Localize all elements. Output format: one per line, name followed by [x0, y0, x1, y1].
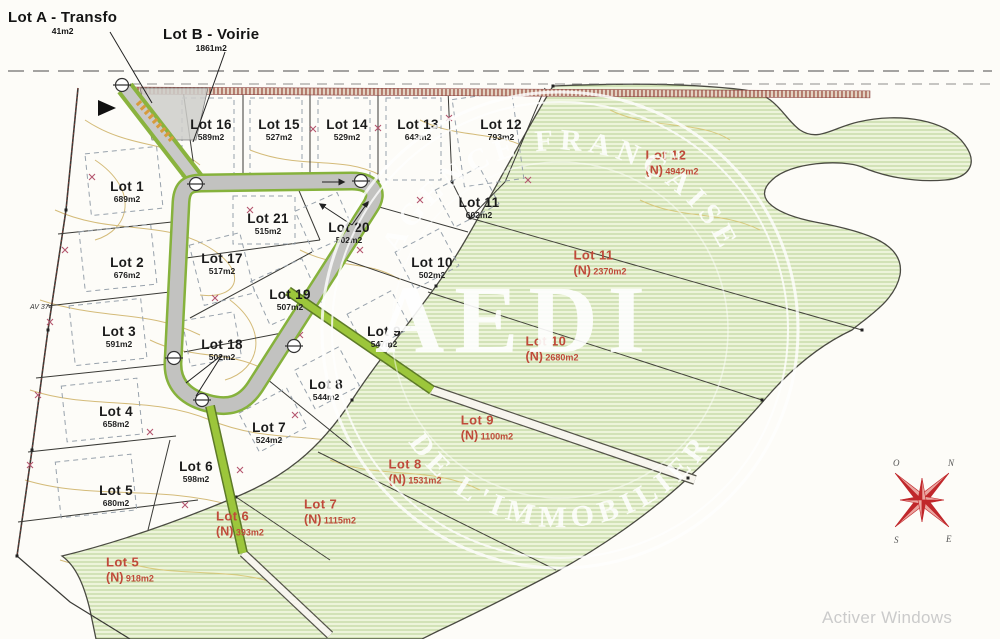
new-lot-area: 1115m2	[321, 515, 356, 525]
new-lot-detail: (N) 2680m2	[526, 349, 579, 364]
lot-name: Lot 16	[190, 118, 232, 133]
lot-area: 502m2	[411, 271, 453, 280]
new-lot-area: 4942m2	[663, 166, 699, 176]
lot-a-area: 41m2	[8, 27, 117, 36]
new-lot-area: 393m2	[233, 527, 264, 537]
new-lot-n: (N)	[461, 428, 478, 442]
lot-name: Lot 3	[102, 325, 136, 340]
lot-label-lot-9: Lot 9547m2	[367, 325, 401, 349]
new-lot-name: Lot 12	[646, 148, 699, 164]
new-lot-label-lot-11: Lot 11(N) 2370m2	[574, 248, 627, 279]
lot-name: Lot 6	[179, 460, 213, 475]
lot-label-lot-21: Lot 21515m2	[247, 212, 289, 236]
lot-labels-layer: Lot 16589m2Lot 15527m2Lot 14529m2Lot 136…	[0, 0, 1000, 639]
lot-label-lot-3: Lot 3591m2	[102, 325, 136, 349]
new-lot-detail: (N) 1531m2	[389, 472, 442, 487]
lot-name: Lot 1	[110, 180, 144, 195]
lot-area: 676m2	[110, 271, 144, 280]
new-lot-detail: (N) 4942m2	[646, 163, 699, 178]
lot-area: 527m2	[258, 133, 300, 142]
lot-name: Lot 7	[252, 421, 286, 436]
lot-name: Lot 9	[367, 325, 401, 340]
lot-area: 689m2	[110, 195, 144, 204]
new-lot-detail: (N) 393m2	[216, 524, 264, 539]
lot-name: Lot 2	[110, 256, 144, 271]
lot-label-lot-6: Lot 6598m2	[179, 460, 213, 484]
lot-area: 658m2	[99, 420, 133, 429]
lot-b-area: 1861m2	[163, 44, 259, 53]
new-lot-name: Lot 5	[106, 555, 154, 571]
new-lot-detail: (N) 1100m2	[461, 428, 513, 443]
lot-label-lot-12: Lot 12793m2	[480, 118, 522, 142]
new-lot-detail: (N) 918m2	[106, 570, 154, 585]
new-lot-name: Lot 8	[389, 457, 442, 473]
lot-name: Lot 5	[99, 484, 133, 499]
lot-label-lot-17: Lot 17517m2	[201, 252, 243, 276]
activate-windows-text: Activer Windows	[822, 608, 952, 628]
new-lot-label-lot-7: Lot 7(N) 1115m2	[304, 497, 356, 528]
lot-name: Lot 8	[309, 378, 343, 393]
lot-label-lot-11: Lot 11602m2	[459, 196, 500, 220]
lot-area: 502m2	[328, 236, 370, 245]
lot-area: 591m2	[102, 340, 136, 349]
lot-a-callout: Lot A - Transfo 41m2	[8, 10, 117, 36]
new-lot-area: 2680m2	[543, 352, 579, 362]
new-lot-n: (N)	[646, 163, 663, 177]
lot-name: Lot 11	[459, 196, 500, 211]
lot-label-lot-13: Lot 13643m2	[397, 118, 439, 142]
lot-name: Lot 13	[397, 118, 439, 133]
new-lot-name: Lot 6	[216, 509, 264, 525]
lot-area: 515m2	[247, 227, 289, 236]
lot-label-lot-15: Lot 15527m2	[258, 118, 300, 142]
new-lot-label-lot-8: Lot 8(N) 1531m2	[389, 457, 442, 488]
new-lot-name: Lot 11	[574, 248, 627, 264]
subdivision-plan: AV 374 N O S E Lot 16589m2Lot 15527m2Lot…	[0, 0, 1000, 639]
new-lot-label-lot-6: Lot 6(N) 393m2	[216, 509, 264, 540]
lot-area: 602m2	[459, 211, 500, 220]
new-lot-area: 2370m2	[591, 266, 627, 276]
new-lot-label-lot-5: Lot 5(N) 918m2	[106, 555, 154, 586]
lot-a-name: Lot A - Transfo	[8, 10, 117, 27]
new-lot-n: (N)	[304, 512, 321, 526]
new-lot-name: Lot 9	[461, 413, 513, 429]
new-lot-label-lot-9: Lot 9(N) 1100m2	[461, 413, 513, 444]
lot-label-lot-8: Lot 8544m2	[309, 378, 343, 402]
lot-name: Lot 12	[480, 118, 522, 133]
lot-label-lot-5: Lot 5680m2	[99, 484, 133, 508]
lot-name: Lot 20	[328, 221, 370, 236]
lot-area: 643m2	[397, 133, 439, 142]
lot-label-lot-16: Lot 16589m2	[190, 118, 232, 142]
lot-area: 524m2	[252, 436, 286, 445]
new-lot-n: (N)	[106, 570, 123, 584]
lot-name: Lot 4	[99, 405, 133, 420]
lot-name: Lot 15	[258, 118, 300, 133]
new-lot-n: (N)	[216, 524, 233, 538]
lot-label-lot-2: Lot 2676m2	[110, 256, 144, 280]
lot-area: 793m2	[480, 133, 522, 142]
lot-area: 502m2	[201, 353, 243, 362]
lot-label-lot-14: Lot 14529m2	[326, 118, 368, 142]
new-lot-area: 1100m2	[478, 431, 513, 441]
lot-name: Lot 17	[201, 252, 243, 267]
new-lot-label-lot-10: Lot 10(N) 2680m2	[526, 334, 579, 365]
new-lot-n: (N)	[574, 263, 591, 277]
lot-area: 547m2	[367, 340, 401, 349]
lot-name: Lot 10	[411, 256, 453, 271]
new-lot-label-lot-12: Lot 12(N) 4942m2	[646, 148, 699, 179]
lot-label-lot-20: Lot 20502m2	[328, 221, 370, 245]
lot-label-lot-19: Lot 19507m2	[269, 288, 311, 312]
new-lot-name: Lot 7	[304, 497, 356, 513]
lot-label-lot-1: Lot 1689m2	[110, 180, 144, 204]
lot-area: 544m2	[309, 393, 343, 402]
lot-area: 589m2	[190, 133, 232, 142]
new-lot-area: 1531m2	[406, 475, 442, 485]
lot-name: Lot 21	[247, 212, 289, 227]
lot-area: 507m2	[269, 303, 311, 312]
lot-area: 680m2	[99, 499, 133, 508]
lot-b-name: Lot B - Voirie	[163, 27, 259, 44]
lot-area: 598m2	[179, 475, 213, 484]
new-lot-name: Lot 10	[526, 334, 579, 350]
new-lot-detail: (N) 2370m2	[574, 263, 627, 278]
lot-label-lot-18: Lot 18502m2	[201, 338, 243, 362]
lot-name: Lot 14	[326, 118, 368, 133]
new-lot-n: (N)	[526, 349, 543, 363]
lot-name: Lot 18	[201, 338, 243, 353]
lot-label-lot-10: Lot 10502m2	[411, 256, 453, 280]
lot-area: 529m2	[326, 133, 368, 142]
new-lot-detail: (N) 1115m2	[304, 512, 356, 527]
lot-label-lot-4: Lot 4658m2	[99, 405, 133, 429]
lot-b-callout: Lot B - Voirie 1861m2	[163, 27, 259, 53]
lot-name: Lot 19	[269, 288, 311, 303]
lot-area: 517m2	[201, 267, 243, 276]
new-lot-n: (N)	[389, 472, 406, 486]
lot-label-lot-7: Lot 7524m2	[252, 421, 286, 445]
new-lot-area: 918m2	[123, 573, 154, 583]
